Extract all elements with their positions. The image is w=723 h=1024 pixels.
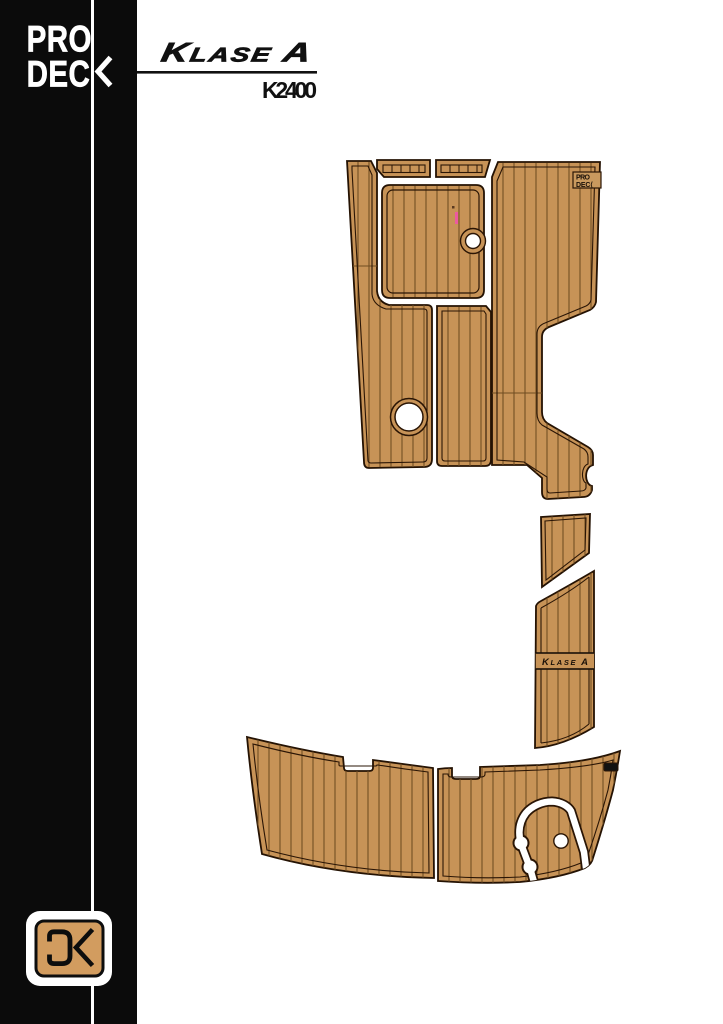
svg-text:K2400: K2400 — [262, 77, 317, 103]
svg-text:PRO: PRO — [576, 175, 591, 182]
svg-text:DEC⟨: DEC⟨ — [576, 181, 593, 189]
svg-text:DEC: DEC — [27, 53, 91, 95]
